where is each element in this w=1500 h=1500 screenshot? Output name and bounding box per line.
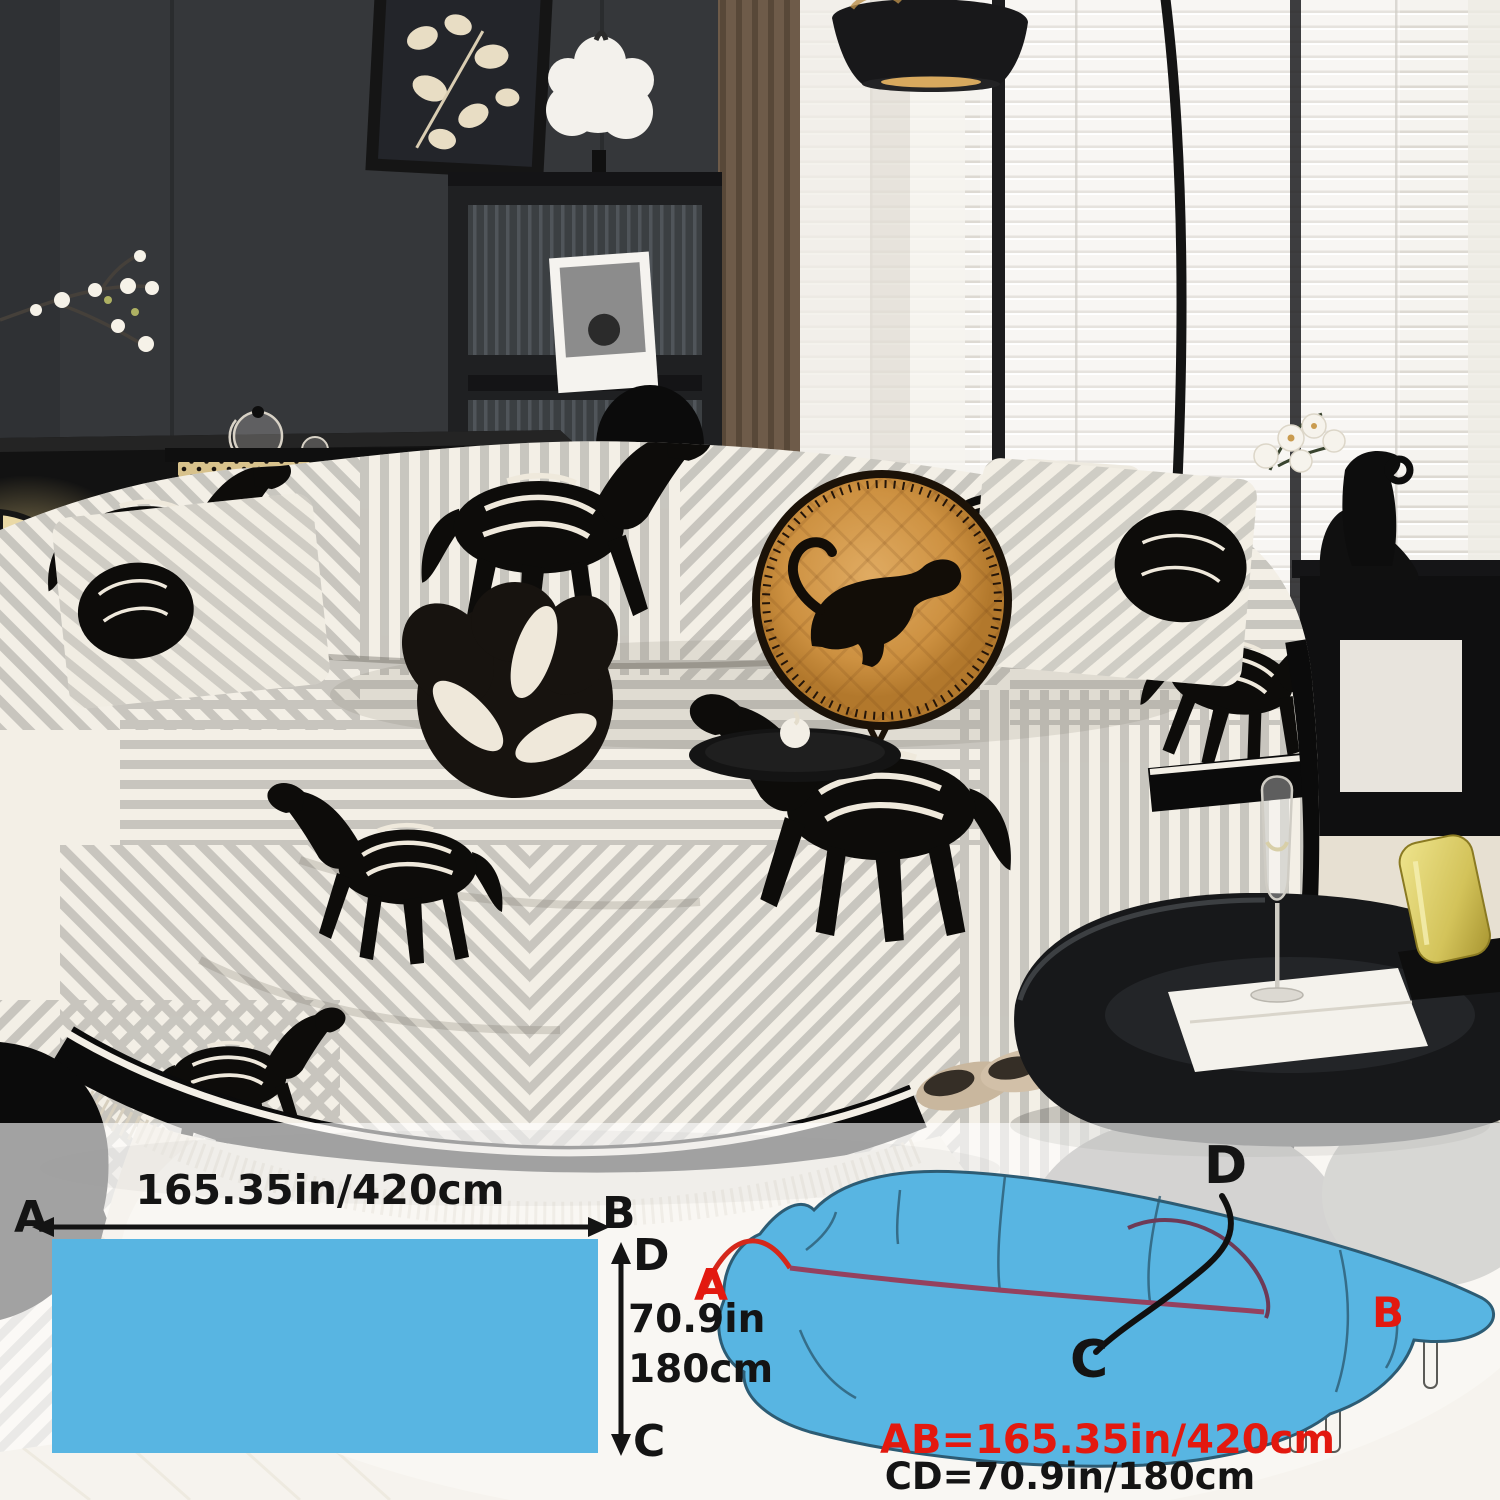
swatch-height-cm: 180cm	[628, 1350, 773, 1389]
sketch-cd-dimension: CD=70.9in/180cm	[880, 1458, 1260, 1495]
swatch-label-a: A	[14, 1196, 48, 1240]
width-arrow-icon	[32, 1217, 610, 1237]
sketch-label-b: B	[1372, 1292, 1404, 1334]
product-photo-card: A 165.35in/420cm B D 70.9in 180cm C A B …	[0, 0, 1500, 1500]
swatch-label-d: D	[633, 1234, 670, 1278]
sketch-label-c: C	[1070, 1334, 1108, 1386]
swatch-label-b: B	[602, 1192, 636, 1236]
sketch-label-a: A	[694, 1264, 728, 1308]
swatch-width-dimension: 165.35in/420cm	[120, 1170, 520, 1211]
sketch-label-d: D	[1204, 1140, 1247, 1192]
sketch-ab-dimension: AB=165.35in/420cm	[880, 1420, 1260, 1460]
size-diagram-graphics	[0, 0, 1500, 1500]
fabric-swatch	[52, 1239, 598, 1453]
swatch-label-c: C	[633, 1420, 665, 1464]
